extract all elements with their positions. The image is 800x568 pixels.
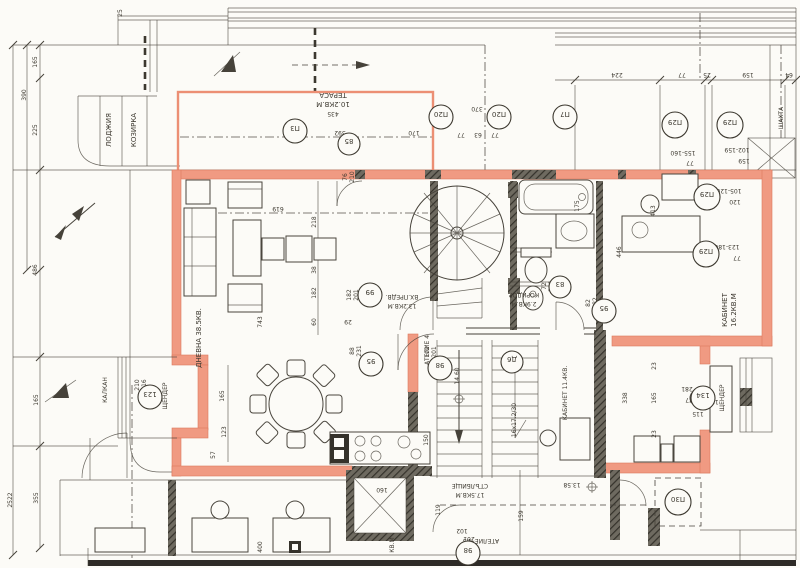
dim-label: 60: [311, 318, 318, 326]
mark-bubble: 95: [359, 352, 383, 376]
desk: [192, 518, 248, 552]
room-label: 13.2КВ.М: [388, 302, 417, 309]
dim-label: 159: [742, 71, 754, 78]
dim-label: 23: [651, 362, 658, 370]
svg-text:95: 95: [367, 357, 376, 365]
dim-label: 159: [738, 157, 750, 164]
svg-text:Д6: Д6: [507, 355, 517, 363]
dim-label: 23: [651, 430, 658, 438]
svg-text:99: 99: [366, 288, 375, 296]
mark-bubble: П30: [665, 489, 691, 515]
dim-label: 390: [21, 89, 28, 101]
mark-bubble: 98: [428, 356, 452, 380]
room-label: ЩЕНДЕР: [719, 384, 726, 411]
dim-label: 63: [474, 131, 482, 138]
dim-label: 355: [33, 492, 40, 504]
room-label: ВХ.ПРЕДВ.: [386, 293, 419, 300]
floor-plan-page: ЛОДЖИЯ КОЗИРКА ТЕРАСА 10.2КВ.М 435 ДНЕВН…: [0, 0, 800, 568]
mark-bubble: 123: [138, 385, 162, 409]
dim-label: 413: [650, 205, 657, 217]
dim-label: 77: [457, 131, 465, 138]
svg-text:П20: П20: [434, 110, 448, 118]
sofa: [184, 208, 216, 296]
dim-label: 77: [678, 71, 686, 78]
room-label: ДНЕВНА 38.5КВ.: [195, 308, 203, 368]
room-label: КВ.М: [389, 537, 396, 552]
armchair: [228, 182, 262, 208]
level-label: 13.58: [563, 481, 580, 488]
mark-bubble: П29: [717, 112, 743, 138]
sink: [556, 214, 594, 248]
room-label: 2.9КВ.М: [511, 300, 536, 307]
mark-bubble: 99: [358, 283, 382, 307]
dim-label: 102: [424, 346, 431, 358]
dim-label: 77: [491, 131, 499, 138]
svg-text:П7: П7: [560, 110, 570, 118]
level-label: 14.60: [454, 367, 461, 384]
stair-spec-label: 16x17.2/30: [511, 403, 518, 437]
desk: [273, 518, 330, 552]
dim-label: 64: [785, 71, 793, 78]
dim-label: 38: [311, 266, 318, 274]
room-label: ЛОДЖИЯ: [105, 113, 113, 147]
lift-size-label: 160: [376, 486, 388, 493]
room-label: 16.2КВ.М: [730, 293, 738, 327]
dim-label: 225: [32, 124, 39, 136]
dim-label: 743: [257, 316, 264, 328]
mark-bubble: П7: [553, 105, 577, 129]
mark-bubble: П29: [693, 241, 719, 267]
mark-bubble: Д6: [501, 351, 523, 373]
dim-label: 370: [471, 105, 483, 112]
room-labels: ЛОДЖИЯ КОЗИРКА ТЕРАСА 10.2КВ.М 435 ДНЕВН…: [102, 91, 785, 553]
dim-label: 119: [435, 504, 442, 516]
side-table: [286, 236, 312, 262]
dim-label: 619: [272, 205, 284, 212]
dim-label: 82: [585, 299, 592, 307]
svg-text:83: 83: [556, 280, 565, 288]
room-label: ТЕРАСА: [319, 91, 348, 99]
room-label: СТЪЛБИЩЕ: [452, 482, 489, 489]
room-label: КОРИДОР: [509, 291, 539, 298]
dim-label: 57: [210, 451, 217, 459]
desk: [560, 418, 590, 460]
dim-label: 123: [221, 426, 228, 438]
mark-bubble: П29: [662, 112, 688, 138]
toilet: [525, 257, 547, 283]
dim-label: 120: [729, 198, 741, 205]
dim-label: 281: [681, 385, 693, 392]
room-label: ЩЕНДЕР: [162, 382, 169, 409]
dim-label: 76: [342, 173, 349, 181]
dim-label: 77: [686, 159, 694, 166]
dim-label: 72: [541, 282, 548, 290]
dim-label: 102-159: [724, 146, 749, 153]
dim-label: 231: [356, 345, 363, 357]
dim-label: 165: [219, 390, 226, 402]
dim-label: 25: [117, 9, 124, 17]
svg-text:П30: П30: [671, 495, 685, 503]
dim-label: 486: [32, 264, 39, 276]
dim-label: 150: [423, 434, 430, 446]
dim-label: 165: [32, 56, 39, 68]
svg-text:123: 123: [143, 390, 156, 398]
dim-label: 159: [518, 510, 525, 522]
dim-label: 435: [327, 110, 339, 117]
room-label: КАЛКАН: [102, 377, 109, 403]
mark-bubble: 95: [592, 299, 616, 323]
svg-text:П3: П3: [290, 124, 300, 132]
dim-label: 210: [134, 379, 141, 391]
armchair: [228, 284, 262, 312]
svg-text:П29: П29: [723, 118, 737, 126]
dining-table: [269, 377, 323, 431]
room-label: КАБИНЕТ 11.4КВ.: [562, 366, 569, 421]
svg-text:П29: П29: [699, 247, 713, 255]
dim-label: 25: [703, 71, 711, 78]
dim-label: 77: [733, 254, 741, 261]
room-label: ШАХТА: [778, 106, 785, 129]
mark-bubble: П29: [694, 184, 720, 210]
toilet-tank: [521, 248, 551, 257]
svg-text:П29: П29: [700, 190, 714, 198]
mark-bubble: П3: [283, 119, 307, 143]
mark-bubble: 98: [456, 541, 480, 565]
svg-text:П29: П29: [668, 118, 682, 126]
dining-set: [250, 360, 342, 448]
dim-label: 210: [349, 171, 356, 183]
elevator-shaft: [346, 470, 414, 541]
svg-text:134: 134: [696, 391, 710, 399]
dim-label: 338: [622, 392, 629, 404]
dim-label: 102: [456, 527, 468, 534]
dim-label: 400: [257, 541, 264, 553]
mark-bubble: П20: [429, 105, 453, 129]
room-label: 17.5КВ.М: [456, 491, 485, 498]
mark-bubble: П20: [487, 105, 511, 129]
svg-text:98: 98: [464, 546, 473, 554]
mark-bubble: 83: [549, 276, 571, 298]
svg-text:95: 95: [600, 304, 609, 312]
dim-label: 2522: [7, 492, 14, 507]
dim-label: 170: [408, 129, 420, 136]
north-arrow-icon: [55, 203, 95, 240]
coffee-table: [233, 220, 261, 276]
svg-text:98: 98: [436, 361, 445, 369]
dim-label: 165: [33, 394, 40, 406]
dim-label: 88: [349, 347, 356, 355]
dim-label: 218: [311, 216, 318, 228]
dim-label: 182: [346, 289, 353, 301]
dim-label: 155-160: [670, 149, 695, 156]
dim-label: 115: [692, 410, 704, 417]
dim-label: 29: [344, 318, 352, 325]
svg-text:П20: П20: [492, 110, 506, 118]
mark-bubble: 134: [691, 386, 715, 410]
kitchen-counter: [330, 432, 430, 464]
dim-label: 165: [651, 392, 658, 404]
dim-label: 224: [611, 71, 623, 78]
dim-label: 105-120: [716, 187, 741, 194]
floor-plan-drawing: ЛОДЖИЯ КОЗИРКА ТЕРАСА 10.2КВ.М 435 ДНЕВН…: [0, 0, 800, 568]
dim-label: 175: [574, 200, 581, 212]
room-label: 10.2КВ.М: [316, 100, 350, 108]
dim-label: 182: [311, 287, 318, 299]
room-label: КАБИНЕТ: [721, 292, 729, 326]
svg-text:85: 85: [345, 137, 354, 145]
dim-label: 446: [616, 246, 623, 258]
room-label: КОЗИРКА: [130, 113, 138, 147]
desk: [622, 216, 700, 252]
mark-bubble: 85: [338, 133, 360, 155]
